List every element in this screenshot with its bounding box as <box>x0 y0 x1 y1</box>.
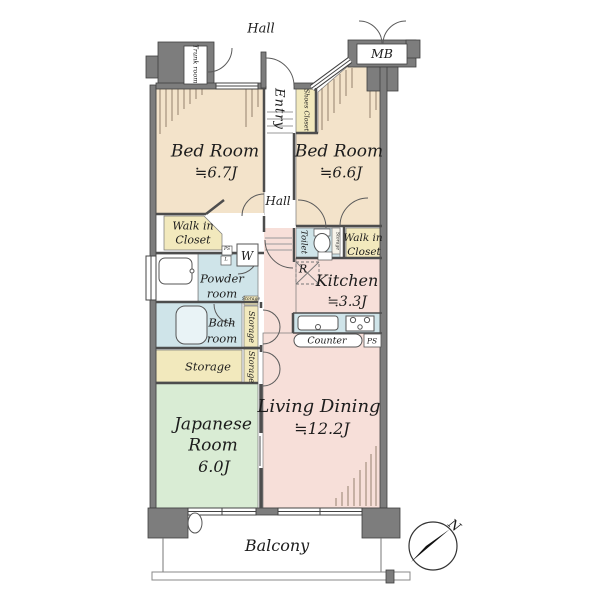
balcony-structure <box>152 538 410 583</box>
storage-mini-area <box>244 296 258 305</box>
floor-plan: Hall Trunk room MB Entry Shoes Closet Be… <box>0 0 600 600</box>
bottom-wall-mid <box>256 508 278 515</box>
toilet-ps-box <box>318 252 332 260</box>
storage-strip1-area <box>244 306 258 347</box>
balcony-pillar-left <box>148 508 188 538</box>
right-wall <box>380 67 387 508</box>
basin-tap-icon <box>190 269 194 273</box>
stove-burner-2 <box>364 317 369 322</box>
washbasin-icon <box>159 258 192 284</box>
ps-box <box>364 334 381 347</box>
bathtub-icon <box>176 306 207 344</box>
linen-small-box <box>221 256 231 265</box>
balcony-railing <box>152 572 410 580</box>
north-compass-icon <box>409 522 457 570</box>
shoes-closet-area <box>296 88 316 133</box>
room-fills <box>156 66 382 508</box>
kitchen-area <box>296 258 382 313</box>
balcony-pillar-right <box>362 508 400 538</box>
entry-door-arc <box>266 58 294 86</box>
storage-strip2-area <box>244 349 258 384</box>
mb-step <box>406 40 420 58</box>
counter-label-box <box>294 334 362 347</box>
living-dining-area <box>263 333 382 508</box>
storage-area <box>156 350 242 382</box>
walk-in-closet-right-area <box>346 228 382 260</box>
balcony-drain-icon <box>188 513 202 533</box>
stove-burner-3 <box>358 325 362 329</box>
japanese-room-area <box>156 383 258 508</box>
toilet-bowl-icon <box>314 234 330 253</box>
toilet-storage-area <box>332 228 340 254</box>
sink-drain-icon <box>316 325 321 330</box>
trunk-room-inset <box>184 46 207 84</box>
floor-plan-drawing <box>0 0 600 600</box>
mb-inset <box>357 44 407 64</box>
ps-small-box <box>222 246 232 255</box>
entry-left-jamb <box>261 52 266 88</box>
railing-post <box>386 570 394 583</box>
washing-machine-box <box>237 244 258 266</box>
stove-burner-1 <box>350 317 355 322</box>
